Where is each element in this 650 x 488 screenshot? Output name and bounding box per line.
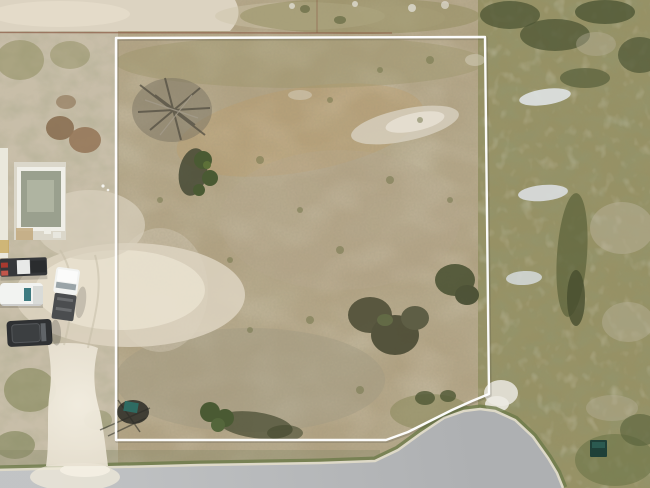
pallet xyxy=(16,228,33,240)
rock-speck xyxy=(352,1,358,7)
white-marker xyxy=(107,189,110,192)
aerial-photo-lot xyxy=(0,0,650,488)
red-dirt-line xyxy=(0,32,392,33)
van-hood xyxy=(33,286,43,304)
van-windshield xyxy=(24,288,31,301)
dumpster xyxy=(590,440,607,457)
sand-spot xyxy=(288,90,312,100)
bush xyxy=(415,391,435,405)
tree-canopy xyxy=(211,418,225,432)
material-stack xyxy=(53,232,61,238)
vehicle-shadow xyxy=(0,304,43,308)
tree-shadow xyxy=(267,425,303,441)
suv-roof xyxy=(12,323,41,342)
tree-canopy xyxy=(202,170,218,186)
tree-mass xyxy=(455,285,479,305)
dense-brush xyxy=(560,68,610,88)
bush xyxy=(300,5,310,13)
truck-bed xyxy=(31,260,46,273)
flatbed-truck xyxy=(0,257,47,281)
rock-speck xyxy=(441,1,449,9)
bush xyxy=(334,16,346,24)
dirt-pile xyxy=(69,127,101,153)
truck-red-accent xyxy=(1,263,8,268)
dumpster-lid xyxy=(592,442,605,448)
rock-speck xyxy=(289,3,295,9)
tree-canopy xyxy=(193,184,205,196)
green-gully-core xyxy=(567,270,585,326)
dead-brush-pile xyxy=(132,78,212,142)
edge-structure-accent xyxy=(0,240,9,253)
scrub-patch xyxy=(50,41,90,69)
pale-zone xyxy=(576,32,616,56)
dirt-pile xyxy=(56,95,76,109)
dense-brush xyxy=(575,0,635,24)
tree-highlight xyxy=(377,314,393,326)
truck-cab xyxy=(17,260,30,274)
scrub-patch xyxy=(4,368,56,412)
pickup-bed xyxy=(51,293,76,322)
tree-mass xyxy=(401,306,429,330)
white-van xyxy=(0,283,43,308)
rock-speck xyxy=(408,4,416,12)
building-interior xyxy=(27,180,54,212)
suv-windshield xyxy=(41,323,47,341)
bush xyxy=(440,390,456,402)
tree-highlight xyxy=(203,161,211,169)
truck-red-accent xyxy=(1,271,8,276)
material-stack xyxy=(44,228,51,234)
sand-spot xyxy=(465,54,485,66)
white-marker xyxy=(101,184,104,187)
aerial-photo-canvas xyxy=(0,0,650,488)
